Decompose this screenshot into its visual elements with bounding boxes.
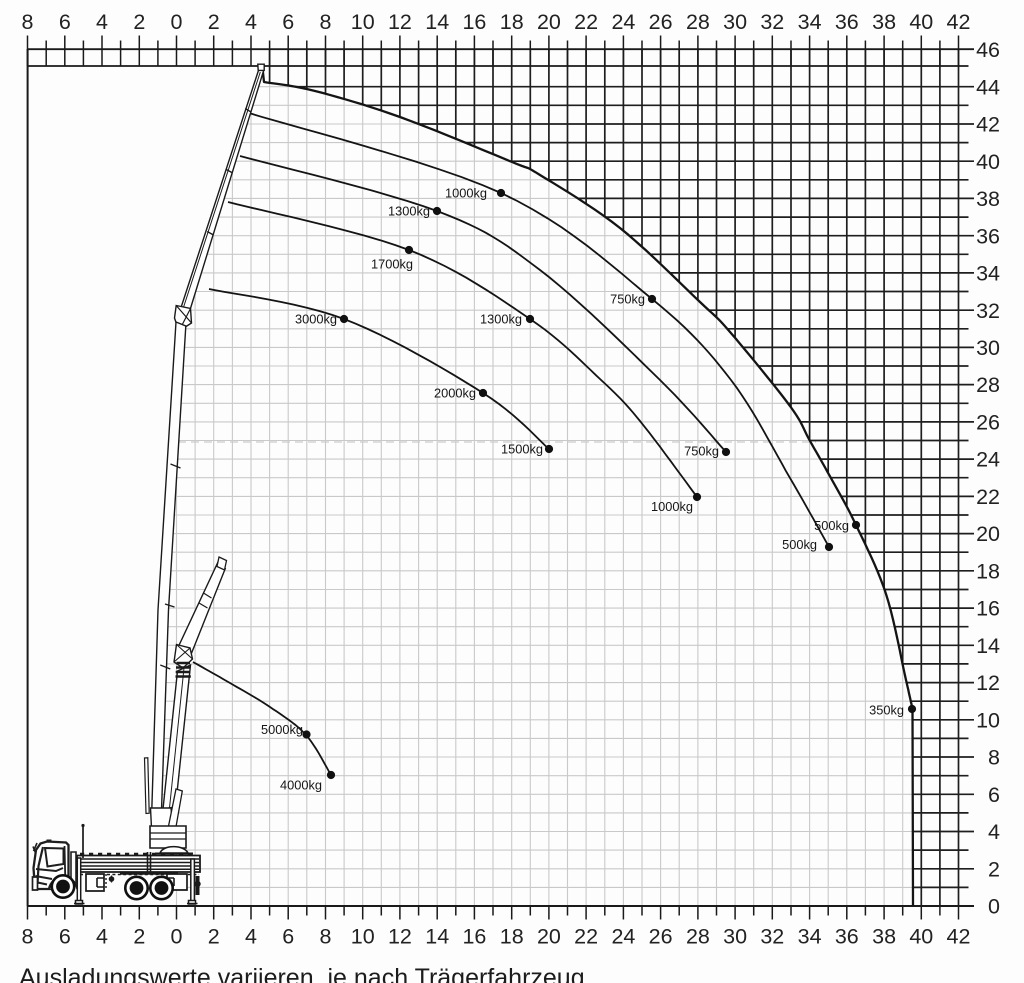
svg-text:6: 6 [282,925,294,949]
svg-text:34: 34 [798,925,822,949]
svg-text:8: 8 [22,10,34,34]
svg-text:2: 2 [133,925,145,949]
svg-text:8: 8 [320,10,332,34]
svg-text:28: 28 [976,373,1000,397]
svg-text:0: 0 [171,10,183,34]
svg-text:5000kg: 5000kg [261,722,303,737]
svg-text:36: 36 [835,10,859,34]
svg-text:2: 2 [208,10,220,34]
svg-text:350kg: 350kg [869,703,904,718]
svg-text:8: 8 [22,925,34,949]
svg-text:4000kg: 4000kg [280,778,322,793]
svg-text:24: 24 [611,925,635,949]
svg-text:28: 28 [686,925,710,949]
svg-text:1000kg: 1000kg [651,499,693,514]
svg-text:30: 30 [723,10,747,34]
svg-text:40: 40 [909,925,933,949]
svg-text:32: 32 [976,299,1000,323]
svg-text:2: 2 [208,925,220,949]
svg-text:8: 8 [988,746,1000,770]
svg-text:750kg: 750kg [684,444,719,459]
svg-text:16: 16 [462,10,486,34]
svg-text:6: 6 [59,925,71,949]
svg-text:14: 14 [976,634,1000,658]
svg-text:4: 4 [96,925,108,949]
svg-text:1500kg: 1500kg [501,442,543,457]
svg-text:750kg: 750kg [610,292,645,307]
svg-text:34: 34 [976,262,1000,286]
svg-text:22: 22 [574,925,598,949]
svg-text:10: 10 [351,925,375,949]
svg-text:12: 12 [388,10,412,34]
svg-text:36: 36 [835,925,859,949]
svg-text:22: 22 [574,10,598,34]
svg-text:2: 2 [133,10,145,34]
svg-text:44: 44 [976,75,1000,99]
svg-text:46: 46 [976,38,1000,62]
svg-text:4: 4 [96,10,108,34]
svg-text:4: 4 [988,820,1000,844]
svg-text:38: 38 [976,187,1000,211]
svg-text:42: 42 [947,10,971,34]
svg-text:1700kg: 1700kg [371,257,413,272]
svg-text:12: 12 [976,671,1000,695]
svg-text:4: 4 [245,10,257,34]
svg-text:10: 10 [351,10,375,34]
svg-text:20: 20 [976,522,1000,546]
svg-text:30: 30 [723,925,747,949]
svg-text:0: 0 [988,895,1000,919]
svg-text:14: 14 [425,925,449,949]
svg-text:32: 32 [760,10,784,34]
svg-text:1300kg: 1300kg [480,312,522,327]
svg-text:6: 6 [282,10,294,34]
svg-text:14: 14 [425,10,449,34]
svg-text:16: 16 [976,597,1000,621]
svg-text:24: 24 [611,10,635,34]
svg-text:2: 2 [988,857,1000,881]
svg-text:4: 4 [245,925,257,949]
svg-text:3000kg: 3000kg [295,312,337,327]
svg-text:32: 32 [760,925,784,949]
svg-text:1000kg: 1000kg [445,186,487,201]
svg-text:2000kg: 2000kg [434,386,476,401]
svg-text:20: 20 [537,10,561,34]
svg-text:22: 22 [976,485,1000,509]
svg-text:26: 26 [649,10,673,34]
svg-text:36: 36 [976,224,1000,248]
svg-text:10: 10 [976,708,1000,732]
svg-text:30: 30 [976,336,1000,360]
svg-text:16: 16 [462,925,486,949]
svg-text:38: 38 [872,10,896,34]
svg-text:12: 12 [388,925,412,949]
svg-text:34: 34 [798,10,822,34]
svg-text:18: 18 [500,925,524,949]
svg-text:0: 0 [171,925,183,949]
svg-text:18: 18 [976,559,1000,583]
svg-text:26: 26 [649,925,673,949]
svg-text:20: 20 [537,925,561,949]
svg-text:8: 8 [320,925,332,949]
svg-text:6: 6 [988,783,1000,807]
svg-text:42: 42 [947,925,971,949]
svg-text:38: 38 [872,925,896,949]
svg-text:500kg: 500kg [814,518,849,533]
svg-text:42: 42 [976,113,1000,137]
svg-text:40: 40 [976,150,1000,174]
svg-text:26: 26 [976,411,1000,435]
svg-text:1300kg: 1300kg [388,204,430,219]
svg-text:24: 24 [976,448,1000,472]
svg-text:18: 18 [500,10,524,34]
svg-text:6: 6 [59,10,71,34]
svg-text:28: 28 [686,10,710,34]
svg-text:Ausladungswerte variieren, je: Ausladungswerte variieren, je nach Träge… [19,964,585,983]
svg-text:40: 40 [909,10,933,34]
svg-text:500kg: 500kg [782,537,817,552]
